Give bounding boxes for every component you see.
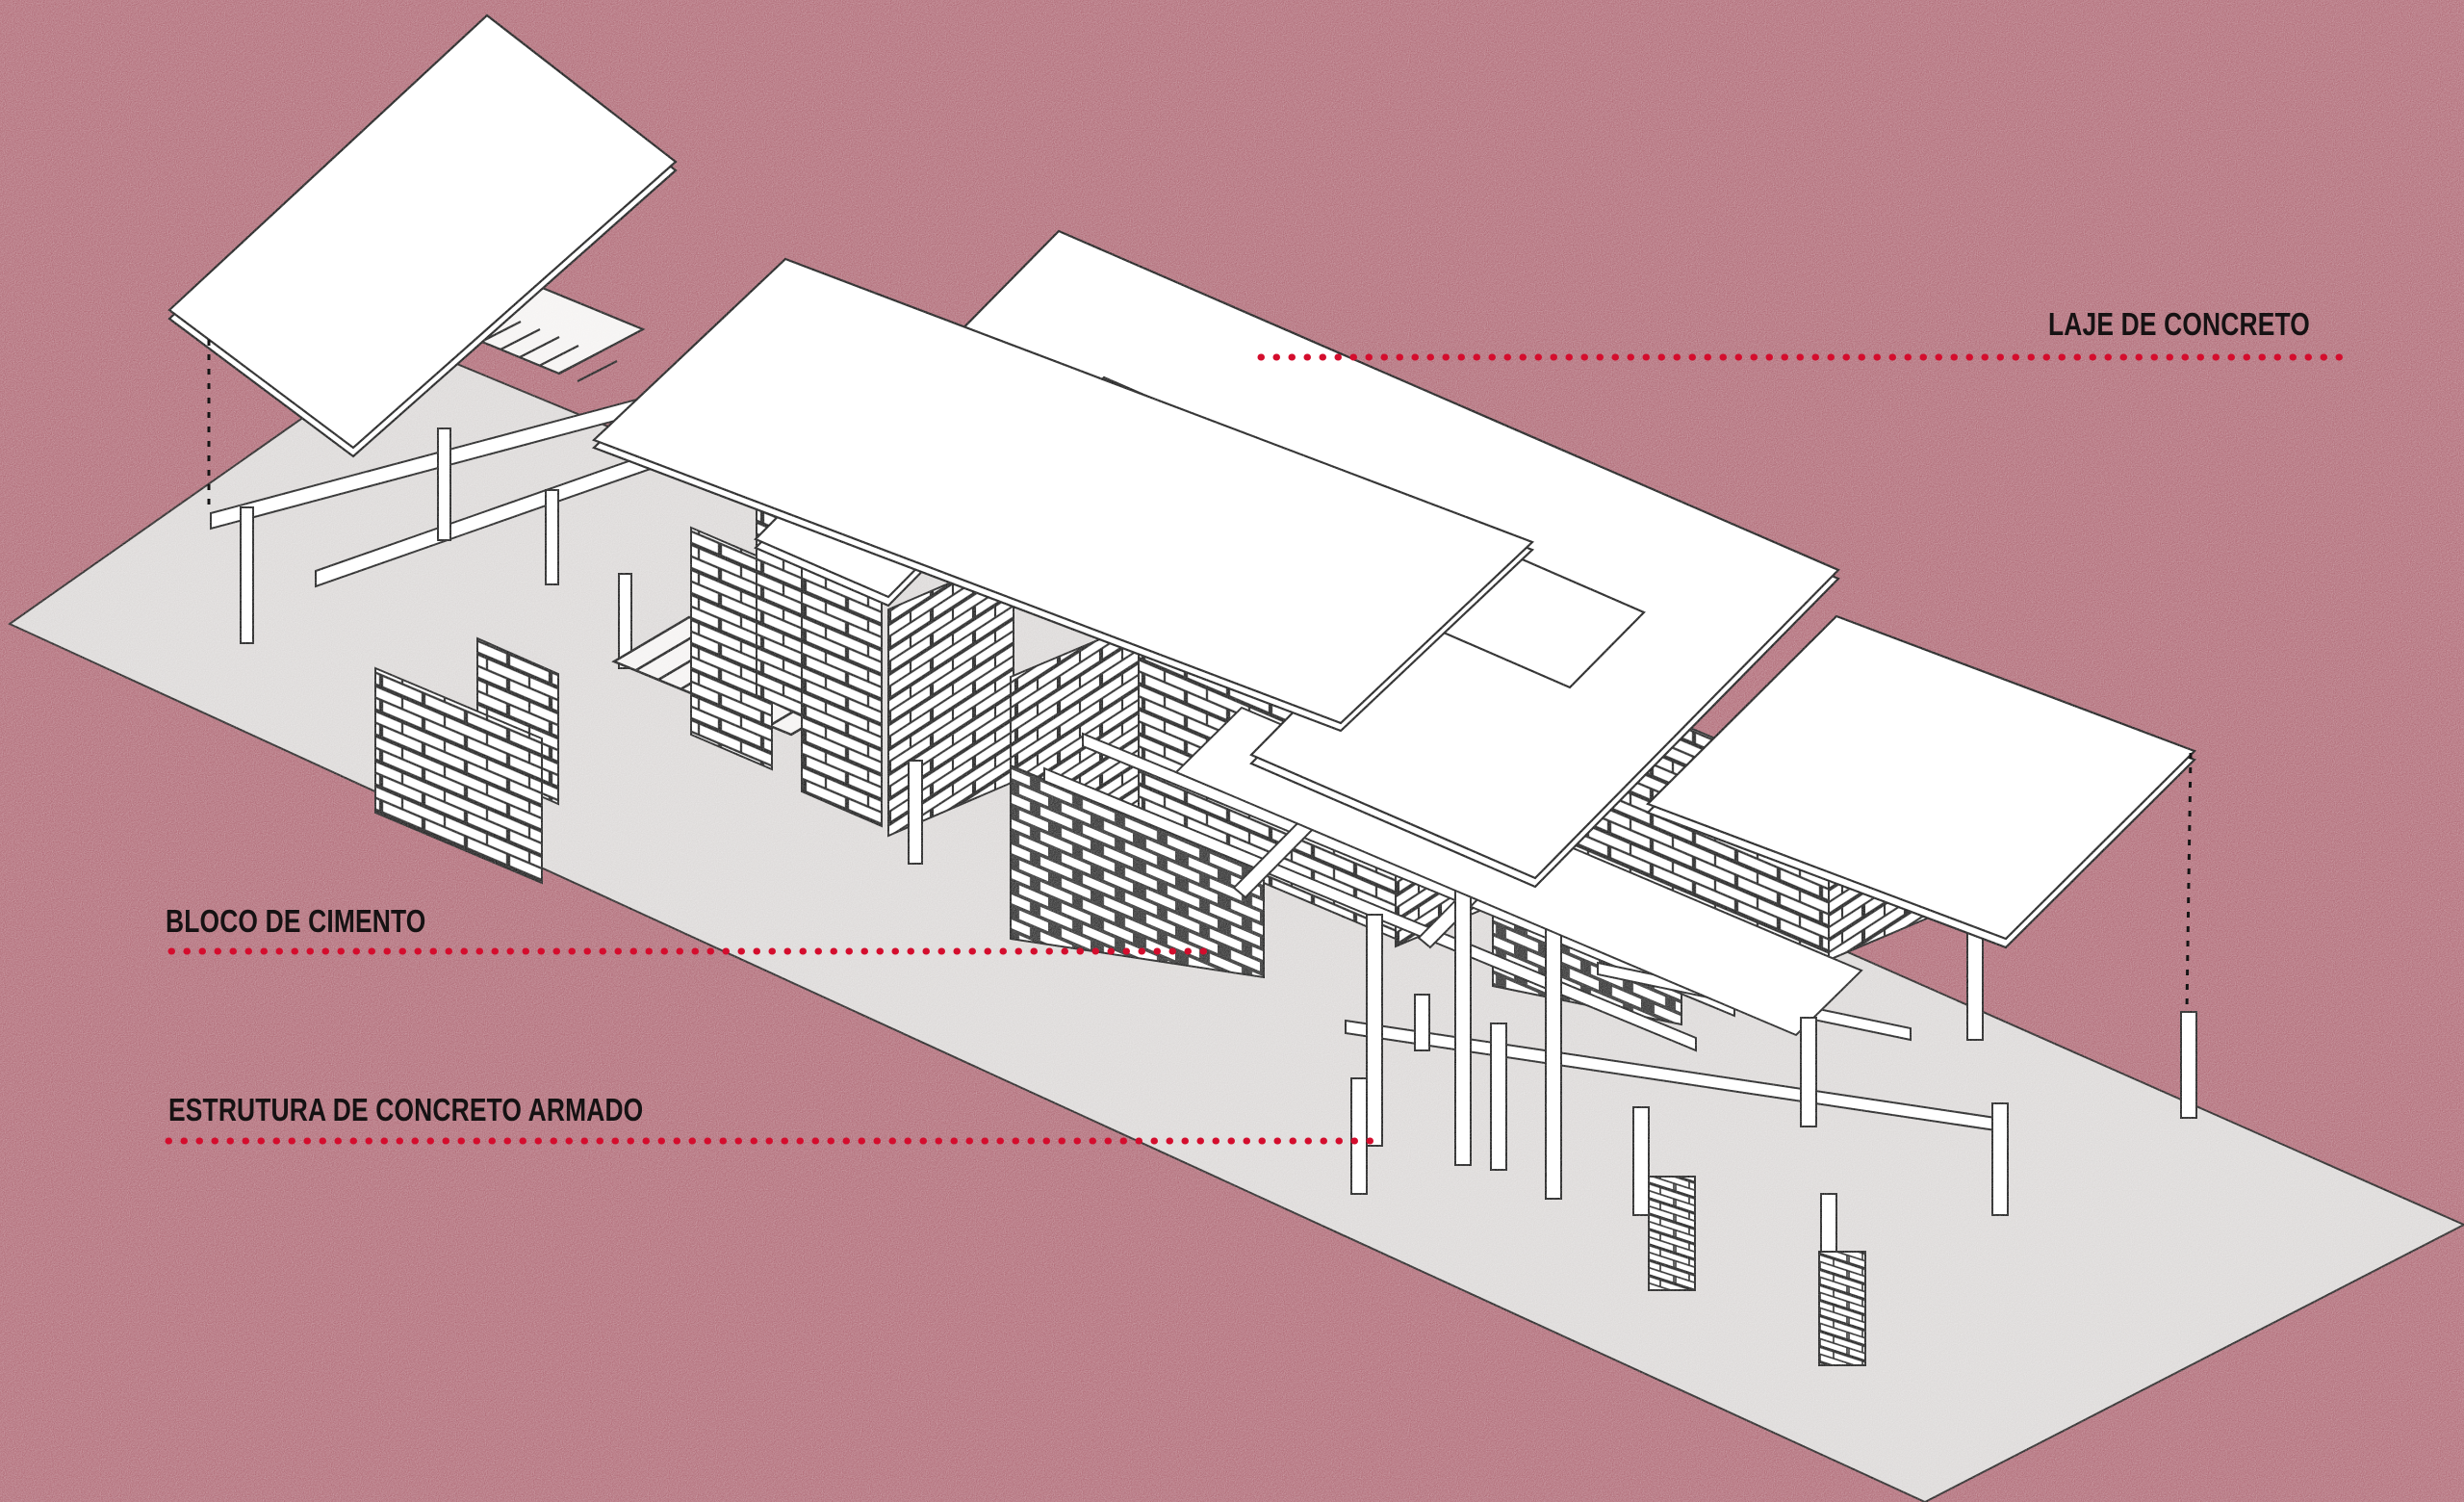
label-bloco-de-cimento: BLOCO DE CIMENTO [166, 903, 425, 940]
axonometric-drawing [0, 0, 2464, 1502]
label-laje-de-concreto: LAJE DE CONCRETO [2048, 306, 2310, 343]
diagram-stage: LAJE DE CONCRETO BLOCO DE CIMENTO ESTRUT… [0, 0, 2464, 1502]
noise-texture-overlay [0, 0, 2464, 1502]
label-estrutura-concreto-armado: ESTRUTURA DE CONCRETO ARMADO [168, 1092, 643, 1128]
